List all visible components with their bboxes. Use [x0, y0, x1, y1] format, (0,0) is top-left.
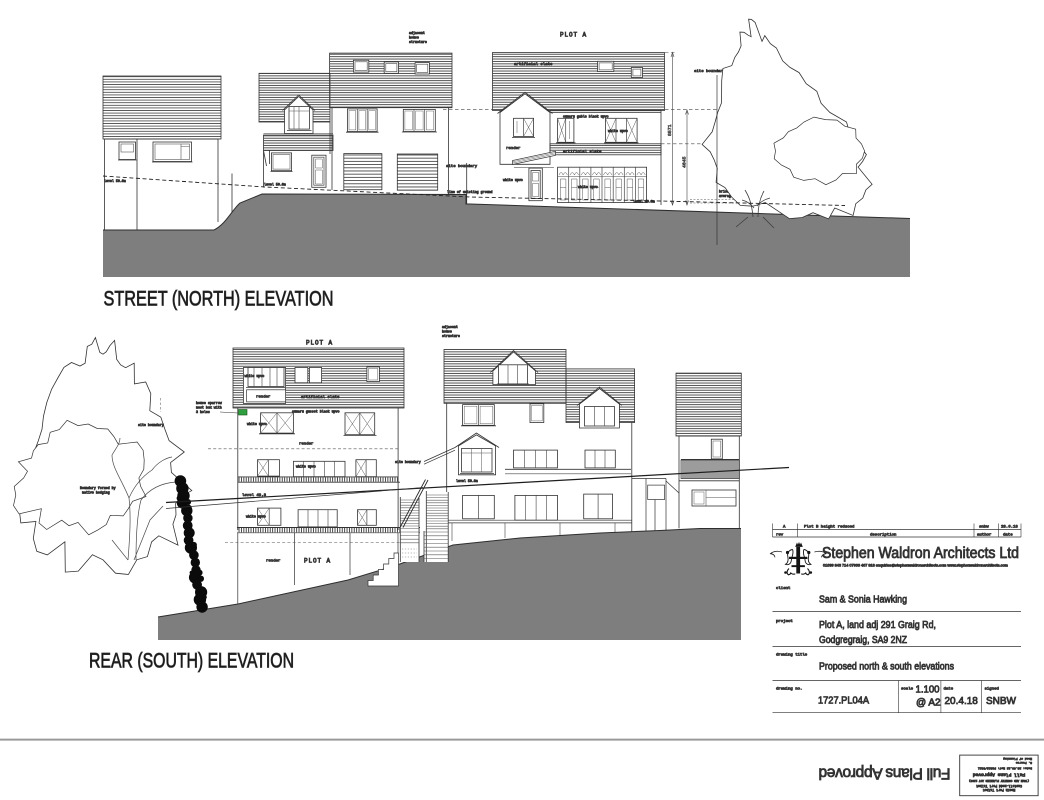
svg-text:Godgregraig, SA9 2NZ: Godgregraig, SA9 2NZ	[819, 635, 908, 646]
svg-text:render: render	[299, 442, 314, 447]
svg-text:author: author	[977, 532, 992, 537]
svg-text:native hedging: native hedging	[82, 491, 110, 495]
svg-text:artificial slate: artificial slate	[563, 150, 602, 155]
svg-text:house: house	[442, 330, 452, 334]
svg-text:Castell-nedd Port Talbot: Castell-nedd Port Talbot	[976, 784, 1022, 788]
svg-text:artificial slate: artificial slate	[301, 395, 340, 400]
svg-text:STREET (NORTH) ELEVATION: STREET (NORTH) ELEVATION	[104, 287, 334, 311]
svg-text:Full Plans Approved: Full Plans Approved	[973, 771, 1026, 777]
svg-text:adjacent: adjacent	[409, 31, 425, 35]
svg-text:white upvc: white upvc	[608, 129, 628, 133]
svg-text:Full Plans Approved: Full Plans Approved	[819, 765, 951, 782]
svg-text:level 50.0m: level 50.0m	[456, 479, 478, 483]
svg-text:site boundary: site boundary	[395, 460, 421, 464]
svg-text:render: render	[266, 559, 281, 564]
svg-text:@ A2: @ A2	[916, 698, 941, 709]
svg-text:1727.PL04A: 1727.PL04A	[818, 696, 869, 707]
svg-text:Date: 20.06.18 Ref: P: Date: 20.06.18 Ref: P2018/0311	[978, 766, 1032, 770]
svg-text:8571: 8571	[667, 124, 673, 136]
svg-text:20.4.18: 20.4.18	[945, 696, 979, 707]
svg-text:house sparrow: house sparrow	[196, 401, 222, 405]
svg-text:3 holes: 3 holes	[196, 410, 210, 414]
svg-text:render: render	[256, 395, 271, 400]
svg-text:artificial slate: artificial slate	[514, 62, 553, 67]
svg-text:cumaru gusset black upvc: cumaru gusset black upvc	[292, 410, 340, 414]
svg-text:white upvc: white upvc	[246, 515, 266, 519]
svg-text:REAR (SOUTH) ELEVATION: REAR (SOUTH) ELEVATION	[89, 649, 294, 673]
svg-text:Stephen Waldron Architects Ltd: Stephen Waldron Architects Ltd	[822, 545, 1019, 562]
svg-text:S. Pearce: S. Pearce	[1016, 761, 1032, 764]
svg-text:render: render	[506, 146, 521, 151]
svg-text:(TOWN AND COUNTRY PLANNING ACT: (TOWN AND COUNTRY PLANNING ACT 1990)	[968, 779, 1029, 783]
svg-text:level 50.0m: level 50.0m	[104, 179, 126, 183]
svg-text:white upvc: white upvc	[247, 422, 267, 426]
svg-text:white upvc: white upvc	[296, 465, 316, 469]
svg-text:Proposed north & south elevati: Proposed north & south elevations	[819, 662, 954, 673]
svg-text:white upvc: white upvc	[245, 374, 265, 378]
svg-text:site boundary: site boundary	[446, 164, 478, 169]
svg-text:level 50.0m: level 50.0m	[264, 183, 286, 187]
svg-text:site boundary: site boundary	[138, 423, 164, 427]
svg-text:PLOT A: PLOT A	[304, 558, 331, 565]
svg-text:drawing no.: drawing no.	[776, 687, 802, 692]
svg-text:project: project	[776, 619, 793, 624]
svg-text:level 49.0m: level 49.0m	[633, 200, 655, 204]
svg-text:description: description	[870, 532, 897, 537]
svg-text:28.6.18: 28.6.18	[1001, 526, 1018, 530]
svg-text:structure: structure	[409, 40, 427, 44]
svg-text:scale: scale	[901, 687, 914, 692]
svg-text:cumaru gable black upvc: cumaru gable black upvc	[563, 115, 609, 119]
svg-text:Plot A, land adj 291 Graig Rd,: Plot A, land adj 291 Graig Rd,	[819, 620, 936, 631]
svg-text:Plot B height reduced: Plot B height reduced	[804, 525, 855, 530]
svg-text:Boundary formed by: Boundary formed by	[80, 486, 116, 490]
svg-text:Head of Planning: Head of Planning	[1003, 757, 1032, 761]
svg-text:house: house	[409, 36, 419, 40]
svg-text:01639 843 714 07966 467 818: 01639 843 714 07966 467 818 enquiries@st…	[823, 564, 1008, 568]
svg-text:line of existing ground: line of existing ground	[447, 190, 493, 194]
svg-text:1.100: 1.100	[916, 685, 940, 696]
svg-text:date: date	[944, 687, 954, 692]
svg-text:site boundary: site boundary	[694, 69, 726, 74]
svg-text:Sam & Sonia Hawking: Sam & Sonia Hawking	[819, 595, 907, 606]
svg-text:date: date	[1003, 532, 1013, 537]
svg-text:signed: signed	[985, 687, 1000, 692]
svg-text:structure: structure	[442, 334, 460, 338]
svg-text:white upvc: white upvc	[503, 178, 523, 182]
svg-text:4045: 4045	[682, 156, 688, 168]
svg-text:client: client	[776, 586, 790, 591]
svg-text:PLOT A: PLOT A	[306, 340, 333, 347]
svg-text:adjacent: adjacent	[442, 325, 458, 329]
svg-text:SNBW: SNBW	[986, 696, 1017, 707]
svg-text:PLOT A: PLOT A	[560, 32, 587, 39]
svg-text:drawing title: drawing title	[776, 653, 808, 658]
svg-text:nest box with: nest box with	[196, 406, 222, 410]
svg-text:rev: rev	[776, 532, 784, 537]
svg-text:snbw: snbw	[979, 525, 989, 530]
svg-text:white upvc: white upvc	[578, 185, 598, 189]
